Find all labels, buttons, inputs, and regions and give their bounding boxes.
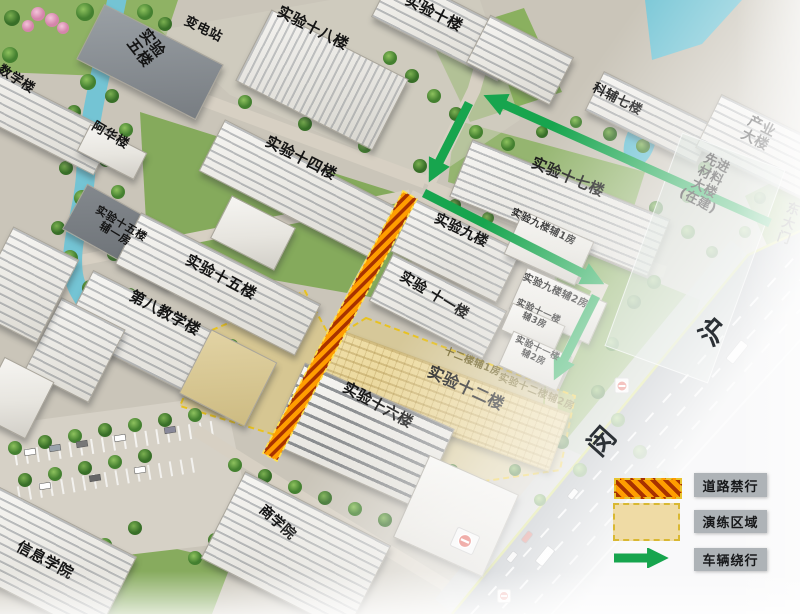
no-entry-sign-road <box>615 378 629 393</box>
campus-drill-map: 数学楼 实验 五楼 变电站 阿华楼 实验十八楼 实验十楼 科辅七楼 产业大楼 先… <box>0 0 800 614</box>
road-vehicles <box>506 340 748 567</box>
detour-arrow-north-junction <box>433 103 469 174</box>
overlay-layer <box>0 0 800 614</box>
no-entry-sign-south <box>498 590 511 603</box>
no-entry-sign-gate <box>450 527 480 555</box>
